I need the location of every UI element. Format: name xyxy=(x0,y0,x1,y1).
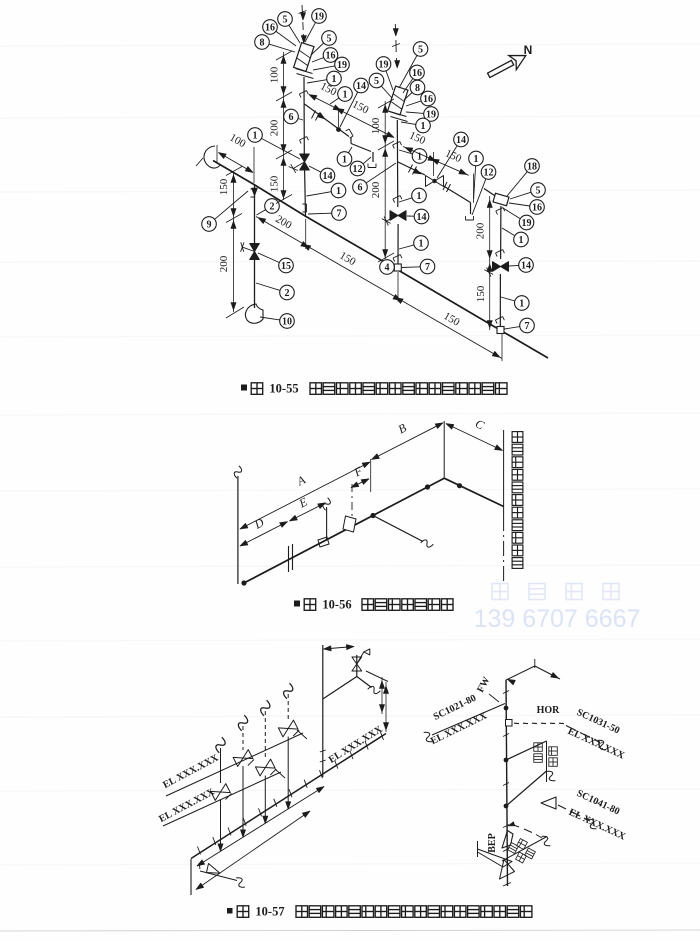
svg-text:2: 2 xyxy=(285,288,290,299)
svg-text:150: 150 xyxy=(218,178,230,195)
svg-text:14: 14 xyxy=(456,135,466,146)
svg-text:16: 16 xyxy=(265,22,275,33)
svg-text:1: 1 xyxy=(474,154,479,165)
svg-text:5: 5 xyxy=(418,44,423,55)
svg-text:12: 12 xyxy=(484,167,494,178)
svg-text:150: 150 xyxy=(475,285,487,302)
svg-text:6: 6 xyxy=(289,112,294,123)
svg-text:16: 16 xyxy=(326,50,336,61)
svg-text:19: 19 xyxy=(426,109,436,120)
svg-text:5: 5 xyxy=(327,33,332,44)
svg-text:5: 5 xyxy=(536,185,541,196)
svg-text:15: 15 xyxy=(281,261,291,272)
svg-text:139 6707 6667: 139 6707 6667 xyxy=(474,605,641,633)
svg-text:N: N xyxy=(524,43,533,57)
svg-text:150: 150 xyxy=(269,175,281,192)
svg-text:19: 19 xyxy=(337,60,347,71)
svg-text:200: 200 xyxy=(269,119,281,136)
svg-text:5: 5 xyxy=(283,14,288,25)
svg-text:1: 1 xyxy=(343,89,348,100)
svg-text:10-56: 10-56 xyxy=(322,598,351,612)
svg-text:8: 8 xyxy=(260,37,265,48)
svg-text:14: 14 xyxy=(356,81,366,92)
svg-text:16: 16 xyxy=(423,94,433,105)
svg-text:5: 5 xyxy=(374,76,379,87)
svg-text:1: 1 xyxy=(519,235,524,246)
svg-text:HOR: HOR xyxy=(537,705,561,716)
svg-text:19: 19 xyxy=(314,11,324,22)
svg-text:4: 4 xyxy=(385,262,390,273)
svg-text:16: 16 xyxy=(412,68,422,79)
svg-text:16: 16 xyxy=(532,202,542,213)
svg-text:19: 19 xyxy=(379,59,389,70)
svg-text:14: 14 xyxy=(417,212,427,223)
svg-text:18: 18 xyxy=(527,161,537,172)
svg-text:BEP: BEP xyxy=(487,833,498,852)
svg-text:10-57: 10-57 xyxy=(255,905,284,919)
svg-text:1: 1 xyxy=(332,74,337,85)
svg-text:200: 200 xyxy=(475,222,487,239)
svg-text:1: 1 xyxy=(519,298,524,309)
svg-text:2: 2 xyxy=(270,201,275,212)
svg-text:14: 14 xyxy=(521,260,531,271)
svg-text:100: 100 xyxy=(269,66,281,83)
svg-text:10: 10 xyxy=(282,316,292,327)
svg-text:1: 1 xyxy=(421,121,426,132)
svg-text:1: 1 xyxy=(253,130,258,141)
svg-text:1: 1 xyxy=(419,238,424,249)
svg-text:1: 1 xyxy=(417,191,422,202)
svg-text:14: 14 xyxy=(323,171,333,182)
svg-text:7: 7 xyxy=(337,208,342,219)
svg-text:200: 200 xyxy=(218,255,230,272)
svg-text:7: 7 xyxy=(425,262,430,273)
svg-text:7: 7 xyxy=(525,321,530,332)
svg-text:100: 100 xyxy=(370,117,382,134)
svg-text:8: 8 xyxy=(415,83,420,94)
svg-text:19: 19 xyxy=(522,218,532,229)
svg-text:1: 1 xyxy=(342,154,347,165)
svg-text:9: 9 xyxy=(207,219,212,230)
svg-text:12: 12 xyxy=(353,164,363,175)
svg-text:200: 200 xyxy=(370,181,382,198)
svg-text:1: 1 xyxy=(336,186,341,197)
svg-text:10-55: 10-55 xyxy=(269,382,298,396)
svg-text:6: 6 xyxy=(358,182,363,193)
